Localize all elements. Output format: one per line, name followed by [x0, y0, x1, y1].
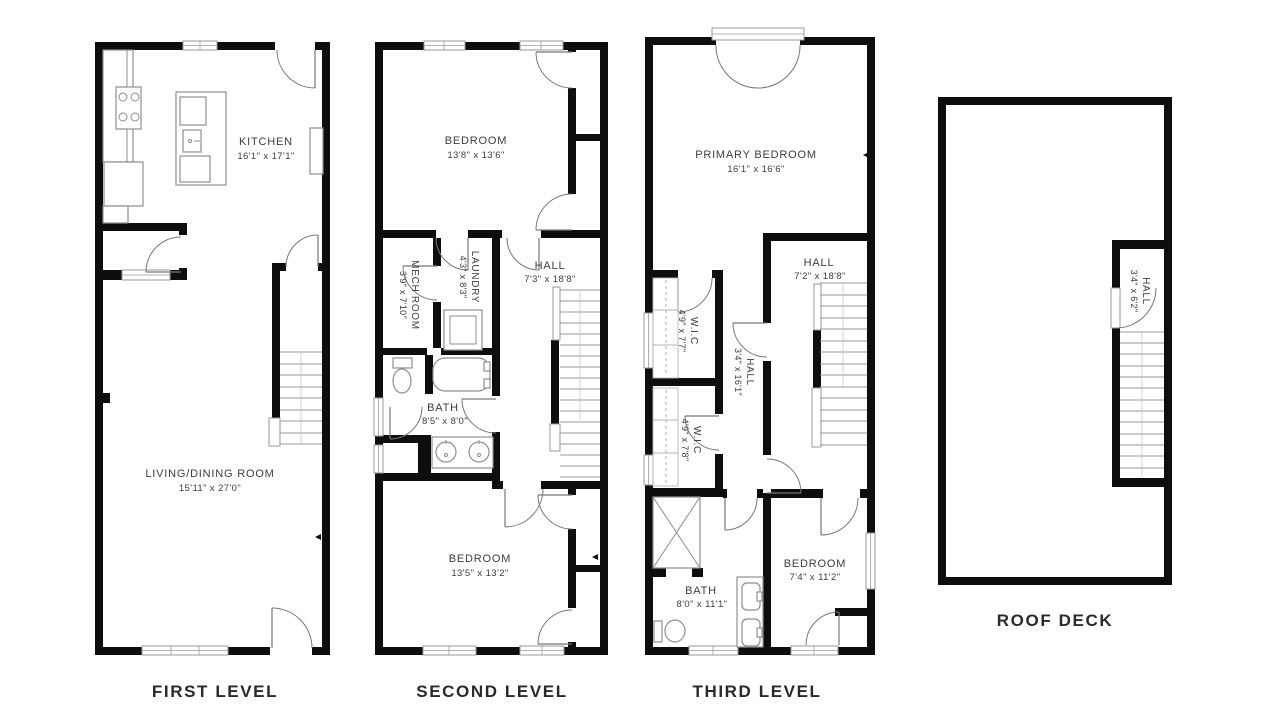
room-label-bedroom-front: BEDROOM — [445, 135, 507, 147]
pantry-cabinet — [310, 128, 323, 174]
level-title-second: SECOND LEVEL — [416, 682, 567, 701]
svg-text:MECH ROOM: MECH ROOM — [409, 260, 420, 330]
window — [520, 41, 563, 50]
window — [423, 646, 476, 655]
room-label-hall-2: HALL — [535, 260, 566, 272]
room-label-bedroom-3: BEDROOM — [784, 558, 846, 570]
window — [142, 646, 228, 655]
svg-text:4'9" x 7'8": 4'9" x 7'8" — [680, 419, 690, 462]
room-dims-bedroom-3: 7'4" x 11'2" — [790, 572, 841, 583]
window — [791, 646, 838, 655]
window — [644, 455, 653, 485]
room-label-kitchen: KITCHEN — [239, 136, 293, 148]
room-label-bath-2: BATH — [427, 402, 459, 414]
vanity-sinks — [737, 577, 763, 647]
toilet — [654, 620, 685, 642]
third-level-plan: PRIMARY BEDROOM 16'1" x 16'6" HALL 7'2" … — [644, 28, 875, 655]
kitchen-counter — [103, 206, 128, 223]
svg-text:3'4" x 16'1": 3'4" x 16'1" — [733, 348, 743, 396]
svg-text:4'3" x 8'3": 4'3" x 8'3" — [458, 256, 468, 299]
refrigerator — [104, 162, 143, 206]
window — [424, 41, 465, 50]
svg-text:HALL: HALL — [744, 358, 755, 386]
svg-text:LAUNDRY: LAUNDRY — [469, 251, 480, 304]
level-title-roof-deck: ROOF DECK — [997, 611, 1113, 630]
window — [689, 646, 738, 655]
svg-text:3'9" x 7'10": 3'9" x 7'10" — [398, 271, 408, 319]
floor-plan-canvas: KITCHEN 16'1" x 17'1" LIVING/DINING ROOM… — [0, 0, 1280, 720]
shower — [653, 497, 700, 568]
kitchen-island — [176, 92, 226, 185]
level-title-third: THIRD LEVEL — [692, 682, 821, 701]
second-level-plan: BEDROOM 13'8" x 13'6" MECH ROOM 3'9" x 7… — [374, 41, 608, 655]
stove — [116, 87, 141, 129]
window — [183, 41, 217, 50]
svg-text:4'9" x 7'7": 4'9" x 7'7" — [677, 310, 687, 353]
svg-text:W.I.C: W.I.C — [691, 426, 702, 454]
room-dims-bedroom-rear: 13'5" x 13'2" — [451, 568, 508, 579]
room-label-hall-3: HALL — [804, 257, 835, 269]
room-dims-hall-2: 7'3" x 18'8" — [524, 274, 576, 285]
washer-dryer — [444, 310, 482, 350]
toilet — [393, 358, 412, 393]
room-dims-kitchen: 16'1" x 17'1" — [237, 151, 294, 162]
bathtub — [433, 358, 490, 391]
room-label-bedroom-rear: BEDROOM — [449, 553, 511, 565]
window — [644, 313, 653, 368]
svg-text:HALL: HALL — [1140, 277, 1151, 305]
room-dims-bath-3: 8'0" x 11'1" — [677, 599, 728, 610]
window — [866, 533, 875, 589]
window — [374, 445, 383, 473]
window — [520, 646, 564, 655]
room-dims-bath-2: 8'5" x 8'0" — [422, 416, 468, 427]
room-dims-primary-bedroom: 16'1" x 16'6" — [727, 164, 784, 175]
room-dims-bedroom-front: 13'8" x 13'6" — [447, 150, 504, 161]
room-label-living-dining: LIVING/DINING ROOM — [145, 468, 274, 480]
vanity-sinks — [432, 437, 493, 468]
level-title-first: FIRST LEVEL — [152, 682, 278, 701]
roof-deck-plan: HALL 3'4" x 6'2" — [938, 97, 1172, 585]
room-label-primary-bedroom: PRIMARY BEDROOM — [695, 149, 817, 161]
window — [374, 398, 383, 436]
room-label-bath-3: BATH — [685, 585, 717, 597]
room-dims-hall-3: 7'2" x 18'8" — [794, 271, 846, 282]
room-dims-living-dining: 15'11" x 27'0" — [179, 483, 241, 494]
first-level-plan: KITCHEN 16'1" x 17'1" LIVING/DINING ROOM… — [95, 41, 330, 655]
svg-text:W.I.C: W.I.C — [688, 317, 699, 345]
floor-plan-page: KITCHEN 16'1" x 17'1" LIVING/DINING ROOM… — [0, 0, 1280, 720]
svg-text:3'4" x 6'2": 3'4" x 6'2" — [1129, 270, 1139, 313]
